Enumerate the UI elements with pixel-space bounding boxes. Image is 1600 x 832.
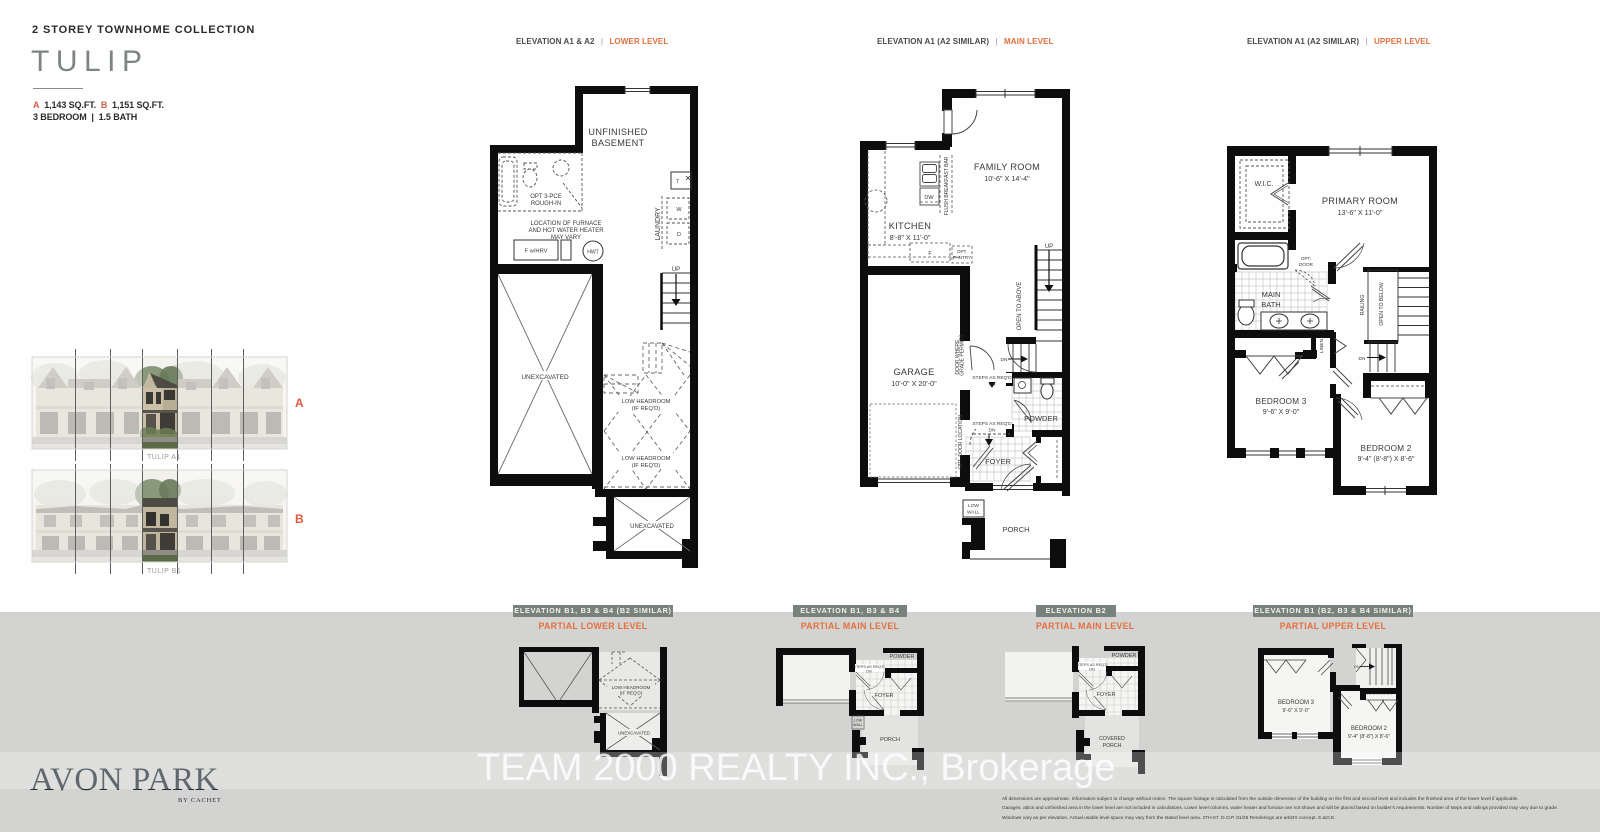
svg-text:STEPS AS REQ'D: STEPS AS REQ'D bbox=[972, 421, 1012, 427]
svg-text:WALL: WALL bbox=[853, 723, 863, 727]
svg-text:FAMILY ROOM: FAMILY ROOM bbox=[974, 162, 1040, 172]
svg-text:GARAGE: GARAGE bbox=[893, 367, 934, 377]
svg-text:OPEN TO BELOW: OPEN TO BELOW bbox=[1379, 282, 1385, 325]
svg-text:10'-0" X 20'-0": 10'-0" X 20'-0" bbox=[891, 379, 937, 388]
svg-text:W: W bbox=[676, 207, 682, 213]
svg-text:POWDER: POWDER bbox=[890, 654, 915, 660]
svg-text:COVERED: COVERED bbox=[1099, 736, 1125, 742]
svg-text:W.I.C.: W.I.C. bbox=[1254, 181, 1273, 188]
svg-text:FLUSH BREAKFAST BAR: FLUSH BREAKFAST BAR bbox=[944, 156, 950, 215]
svg-text:DN: DN bbox=[989, 428, 996, 434]
svg-text:DW: DW bbox=[924, 195, 934, 201]
svg-text:WALL: WALL bbox=[967, 510, 980, 516]
svg-text:UP: UP bbox=[672, 267, 680, 273]
svg-text:PORCH: PORCH bbox=[880, 737, 900, 743]
svg-text:F w/HRV: F w/HRV bbox=[524, 249, 547, 255]
svg-text:LOW HEADROOM: LOW HEADROOM bbox=[622, 456, 671, 462]
svg-text:ROUGH-IN: ROUGH-IN bbox=[531, 201, 561, 207]
svg-text:OPT. DOOR LOCATION: OPT. DOOR LOCATION bbox=[958, 415, 964, 469]
svg-text:(IF REQ'D): (IF REQ'D) bbox=[632, 406, 661, 412]
svg-text:DN: DN bbox=[1001, 357, 1008, 363]
svg-text:STEPS AS REQ'D: STEPS AS REQ'D bbox=[1076, 663, 1107, 667]
svg-text:FOYER: FOYER bbox=[875, 693, 894, 699]
svg-text:AND HOT WATER HEATER: AND HOT WATER HEATER bbox=[528, 228, 604, 234]
svg-text:9'-4" (8'-8") X 8'-6": 9'-4" (8'-8") X 8'-6" bbox=[1348, 734, 1390, 740]
svg-text:DN: DN bbox=[1359, 356, 1366, 362]
svg-text:KITCHEN: KITCHEN bbox=[889, 221, 931, 231]
svg-text:13'-6" X 11'-0": 13'-6" X 11'-0" bbox=[1338, 208, 1383, 217]
svg-text:9'-6" X 9'-0": 9'-6" X 9'-0" bbox=[1282, 708, 1309, 714]
svg-text:RAILING: RAILING bbox=[1360, 295, 1366, 316]
svg-text:PRIMARY ROOM: PRIMARY ROOM bbox=[1322, 196, 1398, 206]
svg-text:STEPS AS REQ'D: STEPS AS REQ'D bbox=[972, 375, 1012, 381]
svg-text:OPEN TO ABOVE: OPEN TO ABOVE bbox=[1017, 282, 1023, 331]
svg-text:8'-8" X 11'-0": 8'-8" X 11'-0" bbox=[890, 233, 931, 242]
svg-text:DN: DN bbox=[1089, 668, 1095, 672]
svg-text:DN: DN bbox=[1354, 665, 1360, 669]
svg-text:LINEN: LINEN bbox=[1319, 338, 1325, 353]
svg-text:9'-6" X 9'-0": 9'-6" X 9'-0" bbox=[1263, 409, 1300, 416]
svg-text:MAIN: MAIN bbox=[1262, 290, 1281, 299]
svg-text:FOYER: FOYER bbox=[985, 457, 1011, 466]
svg-text:F: F bbox=[928, 251, 932, 257]
svg-text:OPT.: OPT. bbox=[957, 249, 967, 254]
svg-text:DOOR: DOOR bbox=[1299, 262, 1313, 267]
svg-text:GRADE PERMITS: GRADE PERMITS bbox=[960, 334, 966, 376]
svg-text:LOW HEADROOM: LOW HEADROOM bbox=[622, 399, 671, 405]
svg-text:LOW: LOW bbox=[854, 719, 863, 723]
svg-text:POWDER: POWDER bbox=[1024, 414, 1058, 423]
svg-text:UNEXCAVATED: UNEXCAVATED bbox=[521, 374, 569, 381]
svg-text:T: T bbox=[676, 179, 679, 185]
svg-text:FOYER: FOYER bbox=[1097, 692, 1116, 698]
svg-text:PANTRY: PANTRY bbox=[953, 255, 971, 260]
svg-text:POWDER: POWDER bbox=[1112, 653, 1137, 659]
svg-text:UNEXCAVATED: UNEXCAVATED bbox=[630, 524, 674, 530]
svg-text:BEDROOM 3: BEDROOM 3 bbox=[1278, 700, 1315, 706]
svg-text:HWT: HWT bbox=[587, 250, 598, 256]
svg-text:D: D bbox=[677, 232, 681, 238]
svg-text:BEDROOM 3: BEDROOM 3 bbox=[1256, 397, 1307, 406]
svg-text:UNFINISHED: UNFINISHED bbox=[588, 127, 647, 137]
svg-text:LOW HEADROOM: LOW HEADROOM bbox=[612, 685, 651, 690]
svg-text:PORCH: PORCH bbox=[1002, 525, 1029, 534]
svg-text:STEPS AS REQ'D: STEPS AS REQ'D bbox=[853, 665, 884, 669]
svg-text:(IF REQ'D): (IF REQ'D) bbox=[632, 463, 661, 469]
svg-text:10'-6" X 14'-4": 10'-6" X 14'-4" bbox=[984, 174, 1030, 183]
svg-text:LOCATION OF FURNACE: LOCATION OF FURNACE bbox=[531, 221, 602, 227]
svg-text:OPT.: OPT. bbox=[1301, 256, 1311, 261]
svg-text:BATH: BATH bbox=[1261, 300, 1280, 309]
svg-text:LOW: LOW bbox=[968, 503, 979, 509]
svg-text:UNEXCAVATED: UNEXCAVATED bbox=[618, 731, 650, 736]
svg-text:9'-4" (8'-8") X 8'-6": 9'-4" (8'-8") X 8'-6" bbox=[1358, 456, 1415, 463]
svg-text:OPT 3-PCE: OPT 3-PCE bbox=[530, 194, 562, 200]
svg-text:LAUNDRY: LAUNDRY bbox=[655, 207, 662, 241]
svg-text:(IF REQ'D): (IF REQ'D) bbox=[620, 691, 643, 696]
svg-text:DN: DN bbox=[866, 670, 872, 674]
svg-text:BEDROOM 2: BEDROOM 2 bbox=[1351, 726, 1388, 732]
svg-text:BASEMENT: BASEMENT bbox=[592, 138, 645, 148]
svg-text:UP: UP bbox=[1045, 244, 1053, 250]
svg-text:BEDROOM 2: BEDROOM 2 bbox=[1361, 444, 1412, 453]
